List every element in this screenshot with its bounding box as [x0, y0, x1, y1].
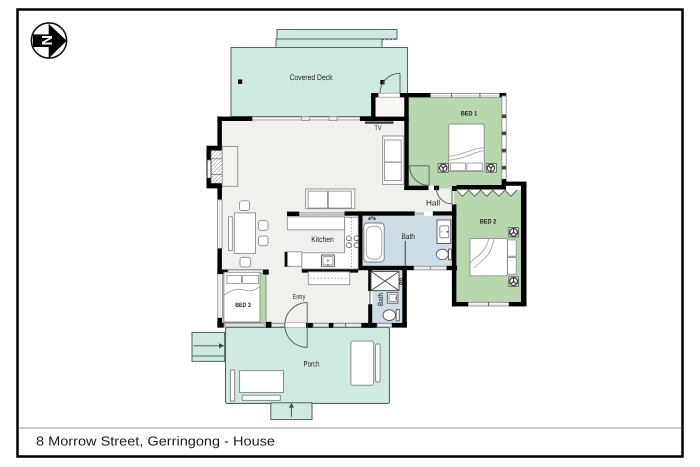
- svg-text:Kitchen: Kitchen: [311, 235, 334, 244]
- svg-text:8 Morrow Street, Gerringong -: 8 Morrow Street, Gerringong - House: [36, 434, 275, 449]
- svg-text:Porch: Porch: [304, 359, 320, 368]
- svg-text:BED 2: BED 2: [480, 219, 497, 226]
- svg-text:TV: TV: [375, 125, 382, 132]
- svg-text:Bath: Bath: [376, 293, 385, 306]
- svg-text:Hall: Hall: [426, 199, 440, 208]
- svg-text:BED 3: BED 3: [235, 302, 251, 309]
- svg-text:Entry: Entry: [293, 294, 306, 301]
- svg-text:N: N: [38, 35, 54, 45]
- svg-text:Bath: Bath: [401, 232, 415, 241]
- svg-text:BED 1: BED 1: [461, 111, 478, 118]
- svg-text:Covered Deck: Covered Deck: [290, 73, 334, 82]
